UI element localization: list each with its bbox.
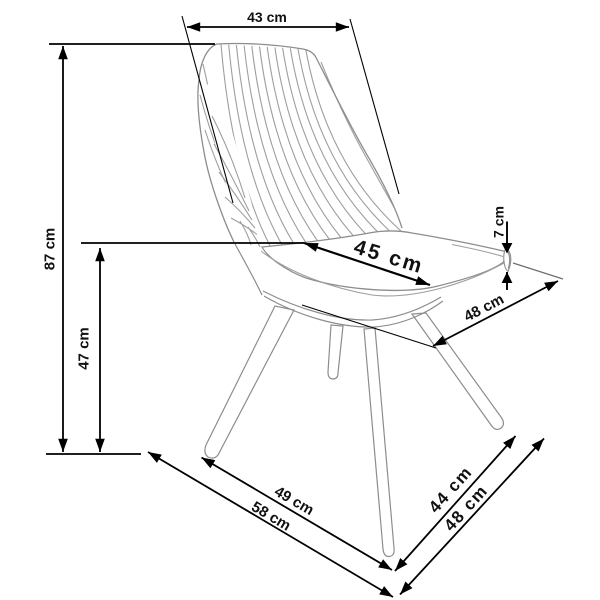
svg-text:47 cm: 47 cm [76,327,93,370]
svg-text:87 cm: 87 cm [42,228,59,271]
svg-text:7 cm: 7 cm [491,206,507,238]
svg-text:43 cm: 43 cm [247,9,287,25]
